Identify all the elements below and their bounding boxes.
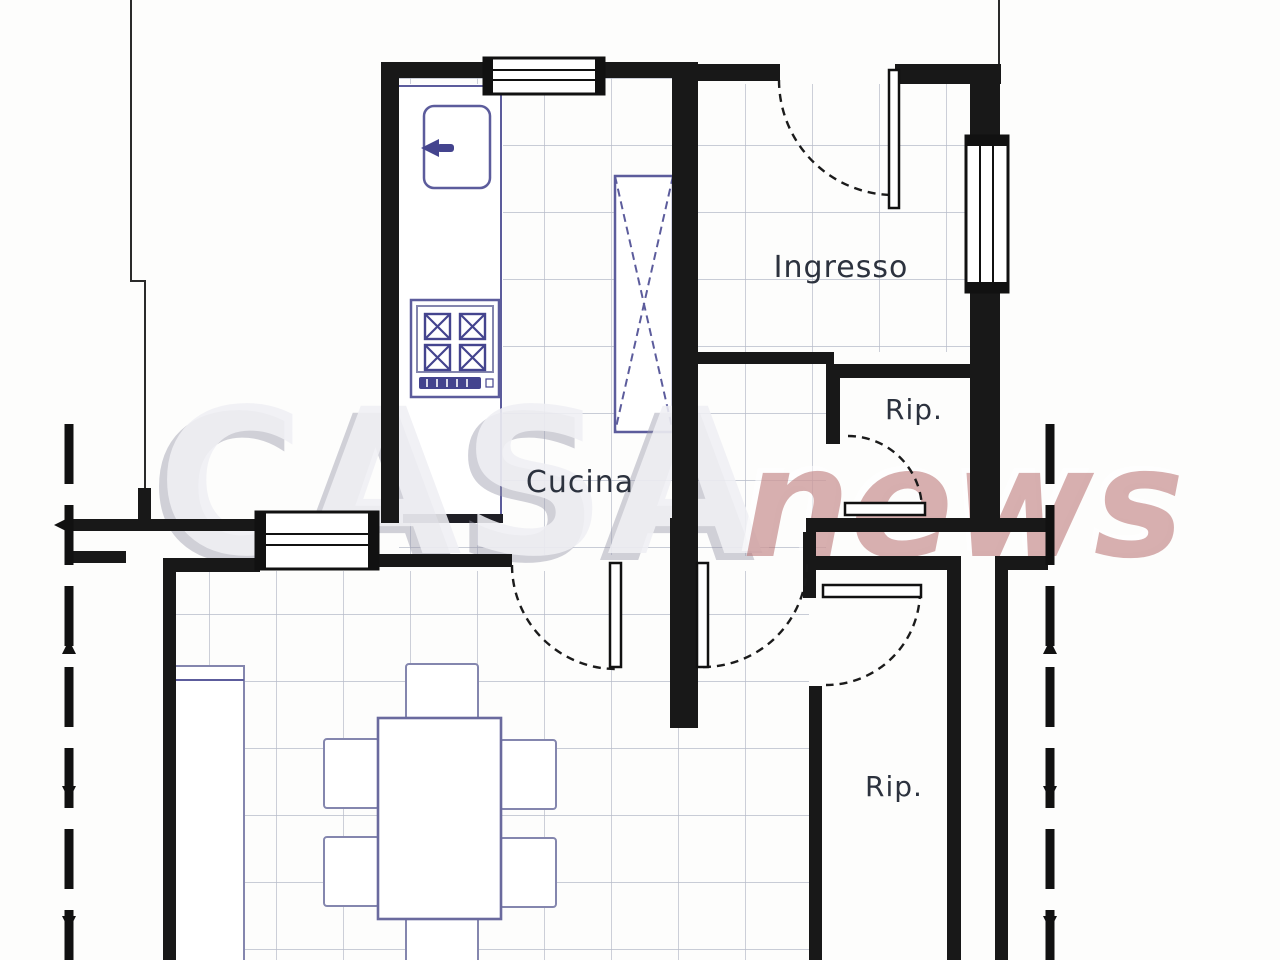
entrance-floor	[698, 84, 970, 352]
right-exterior-wall-upper	[970, 84, 1000, 138]
entrance-label: Ingresso	[774, 250, 909, 285]
living-room-window	[256, 512, 378, 569]
kitchen-bottom-wall	[371, 554, 512, 567]
watermark: CASA CASA news news	[149, 365, 1184, 608]
storage-large-door	[823, 585, 921, 685]
storage-small-label: Rip.	[885, 393, 943, 426]
entrance-top-wall-right	[895, 64, 1001, 84]
entrance-window	[966, 136, 1008, 292]
entrance-top-wall-left	[672, 64, 780, 81]
right-exterior-wall-lower	[995, 556, 1008, 960]
kitchen-window	[484, 58, 604, 94]
chair-top	[406, 664, 478, 720]
right-exterior-piece	[995, 556, 1048, 570]
kitchen-entrance-divider-wall	[672, 62, 698, 518]
chair-right-1	[500, 740, 556, 809]
living-left-wall	[163, 558, 176, 960]
storage-large-left-wall	[809, 686, 822, 960]
sideboard	[166, 666, 244, 960]
terrace-edge-line	[68, 519, 260, 531]
terrace-stub-wall	[68, 551, 126, 563]
entrance-bottom-wall	[694, 352, 834, 364]
central-wall-stub	[670, 518, 698, 728]
right-exterior-wall-mid	[970, 290, 1000, 532]
chair-left-2	[324, 837, 379, 906]
chair-left-1	[324, 739, 379, 808]
kitchen-label: Cucina	[526, 465, 634, 500]
floor-plan-svg: CASA CASA news news	[0, 0, 1280, 960]
storage-large-label: Rip.	[865, 770, 923, 803]
storage-small-left-wall	[826, 364, 840, 444]
fridge-door-arrow-tail	[437, 144, 454, 152]
boundary-line-top-left	[131, 0, 145, 490]
long-mid-wall	[806, 518, 1048, 532]
fridge	[421, 106, 490, 188]
corridor-jamb-wall	[803, 532, 816, 598]
storage-large-right-wall	[947, 556, 961, 960]
storage-small-top-wall	[826, 364, 978, 378]
floor-plan-page: CASA CASA news news	[0, 0, 1280, 960]
kitchen-top-wall-right	[602, 62, 674, 78]
living-top-wall-left	[163, 558, 260, 572]
dining-table	[378, 718, 501, 919]
chair-bottom	[406, 917, 478, 960]
kitchen-left-wall	[381, 62, 399, 523]
storage-large-top-wall	[815, 556, 961, 570]
chair-right-2	[500, 838, 556, 907]
